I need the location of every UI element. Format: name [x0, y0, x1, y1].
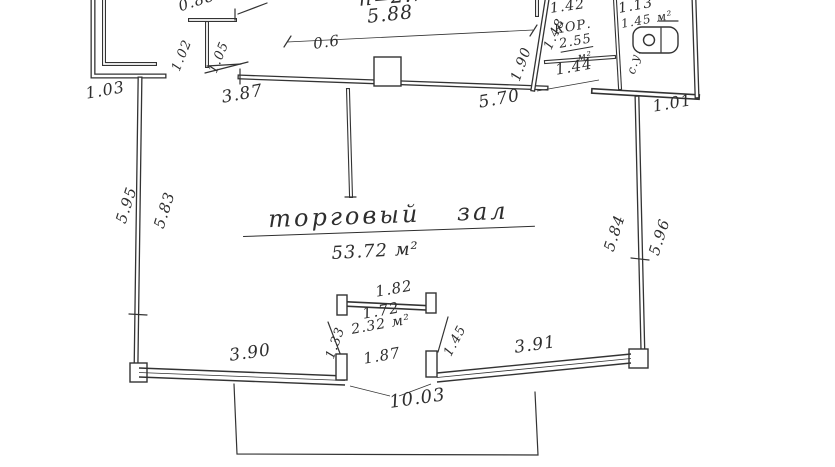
- dim-leader-144: [537, 80, 599, 91]
- wall-outer-right: [694, 0, 697, 96]
- column: [374, 57, 401, 86]
- window-band-bottom-left: [139, 368, 345, 385]
- wall-left: [129, 79, 147, 382]
- partition-stub: [345, 90, 356, 197]
- window-band-bottom-right: [437, 354, 631, 382]
- scanned-floor-plan: h=2.75 5.88 0.88 1.02 1.05 1.03 3.87 0.6…: [0, 0, 835, 467]
- wall-left-jog: [93, 0, 164, 76]
- wall-niche-088: [190, 3, 267, 66]
- dim-column-width: 0.6: [312, 31, 341, 53]
- wall-right: [629, 98, 649, 368]
